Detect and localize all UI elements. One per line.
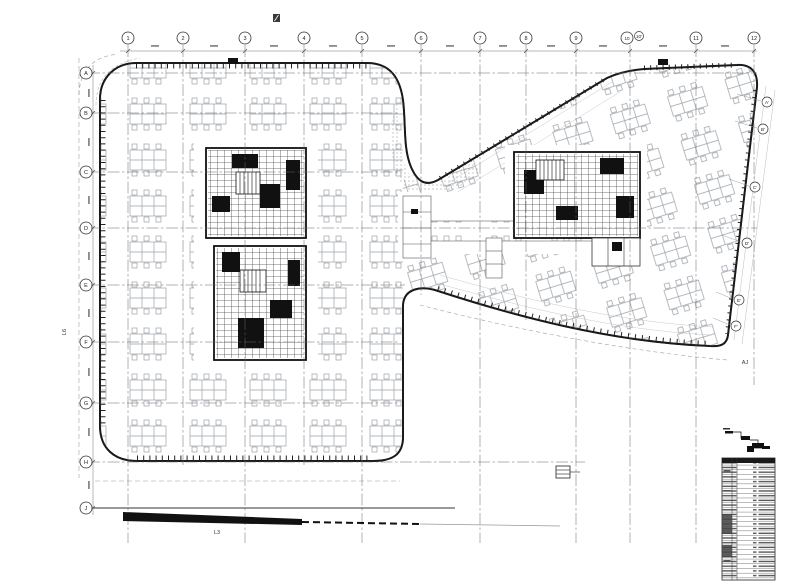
floor-plan-drawing: 1 2 3 4 5 6 7 8 9 10 10' 11 12 A B C D E… xyxy=(0,0,787,587)
core-upper-left xyxy=(206,148,306,238)
label-bottom-margin: L3 xyxy=(214,530,220,536)
grid-bubble-row-b: B xyxy=(84,111,88,117)
grid-bubble-row-h: H xyxy=(84,460,88,466)
grid-bubble-col-10p: 10' xyxy=(636,34,642,39)
grid-bubble-row-fp: F' xyxy=(734,324,738,329)
grid-bubble-col-2: 2 xyxy=(181,36,184,42)
grid-bubble-col-1: 1 xyxy=(126,36,129,42)
grid-bubble-row-ep: E' xyxy=(737,298,741,303)
stair-right xyxy=(536,160,564,180)
grid-bubble-row-cp: C' xyxy=(753,185,757,190)
grid-bubble-row-ap: A' xyxy=(765,100,769,105)
grid-bubble-col-6: 6 xyxy=(419,36,422,42)
north-marker xyxy=(273,14,280,22)
grid-bubble-col-8: 8 xyxy=(524,36,527,42)
section-scale-bar xyxy=(123,512,560,526)
grid-bubble-row-d: D xyxy=(84,226,88,232)
grid-bubble-col-12: 12 xyxy=(751,36,757,42)
grid-bubble-col-4: 4 xyxy=(302,36,305,42)
grid-bubbles-rows-left: A B C D E F G H J xyxy=(80,67,92,514)
grid-bubbles-columns: 1 2 3 4 5 6 7 8 9 10 10' 11 12 xyxy=(122,32,760,45)
grid-bubble-col-10: 10 xyxy=(624,36,630,41)
grid-bubble-row-g: G xyxy=(84,401,88,407)
grid-bubble-col-11: 11 xyxy=(693,36,699,42)
grid-bubble-col-3: 3 xyxy=(243,36,246,42)
grid-bubble-row-j: J xyxy=(85,506,88,512)
label-right-margin: AJ xyxy=(742,360,749,366)
key-diagram xyxy=(723,428,770,452)
grid-bubble-row-dp: D' xyxy=(745,241,749,246)
grid-bubble-row-c: C xyxy=(84,170,88,176)
grid-bubble-col-9: 9 xyxy=(574,36,577,42)
stair-upper-left xyxy=(236,172,260,194)
floor-plan-sheet: 1 2 3 4 5 6 7 8 9 10 10' 11 12 A B C D E… xyxy=(0,0,787,587)
grid-bubble-col-5: 5 xyxy=(360,36,363,42)
grid-bubble-row-bp: B' xyxy=(761,127,765,132)
grid-bubble-row-a: A xyxy=(84,71,88,77)
core-lower-left xyxy=(214,246,306,360)
label-left-margin: L6 xyxy=(62,329,68,335)
grid-bubble-col-7: 7 xyxy=(478,36,481,42)
grid-bubble-row-e: E xyxy=(84,283,88,289)
legend-notes-table xyxy=(722,458,775,580)
stair-lower-left xyxy=(240,270,266,292)
equipment-box xyxy=(556,466,580,478)
core-right-annex xyxy=(592,238,640,266)
